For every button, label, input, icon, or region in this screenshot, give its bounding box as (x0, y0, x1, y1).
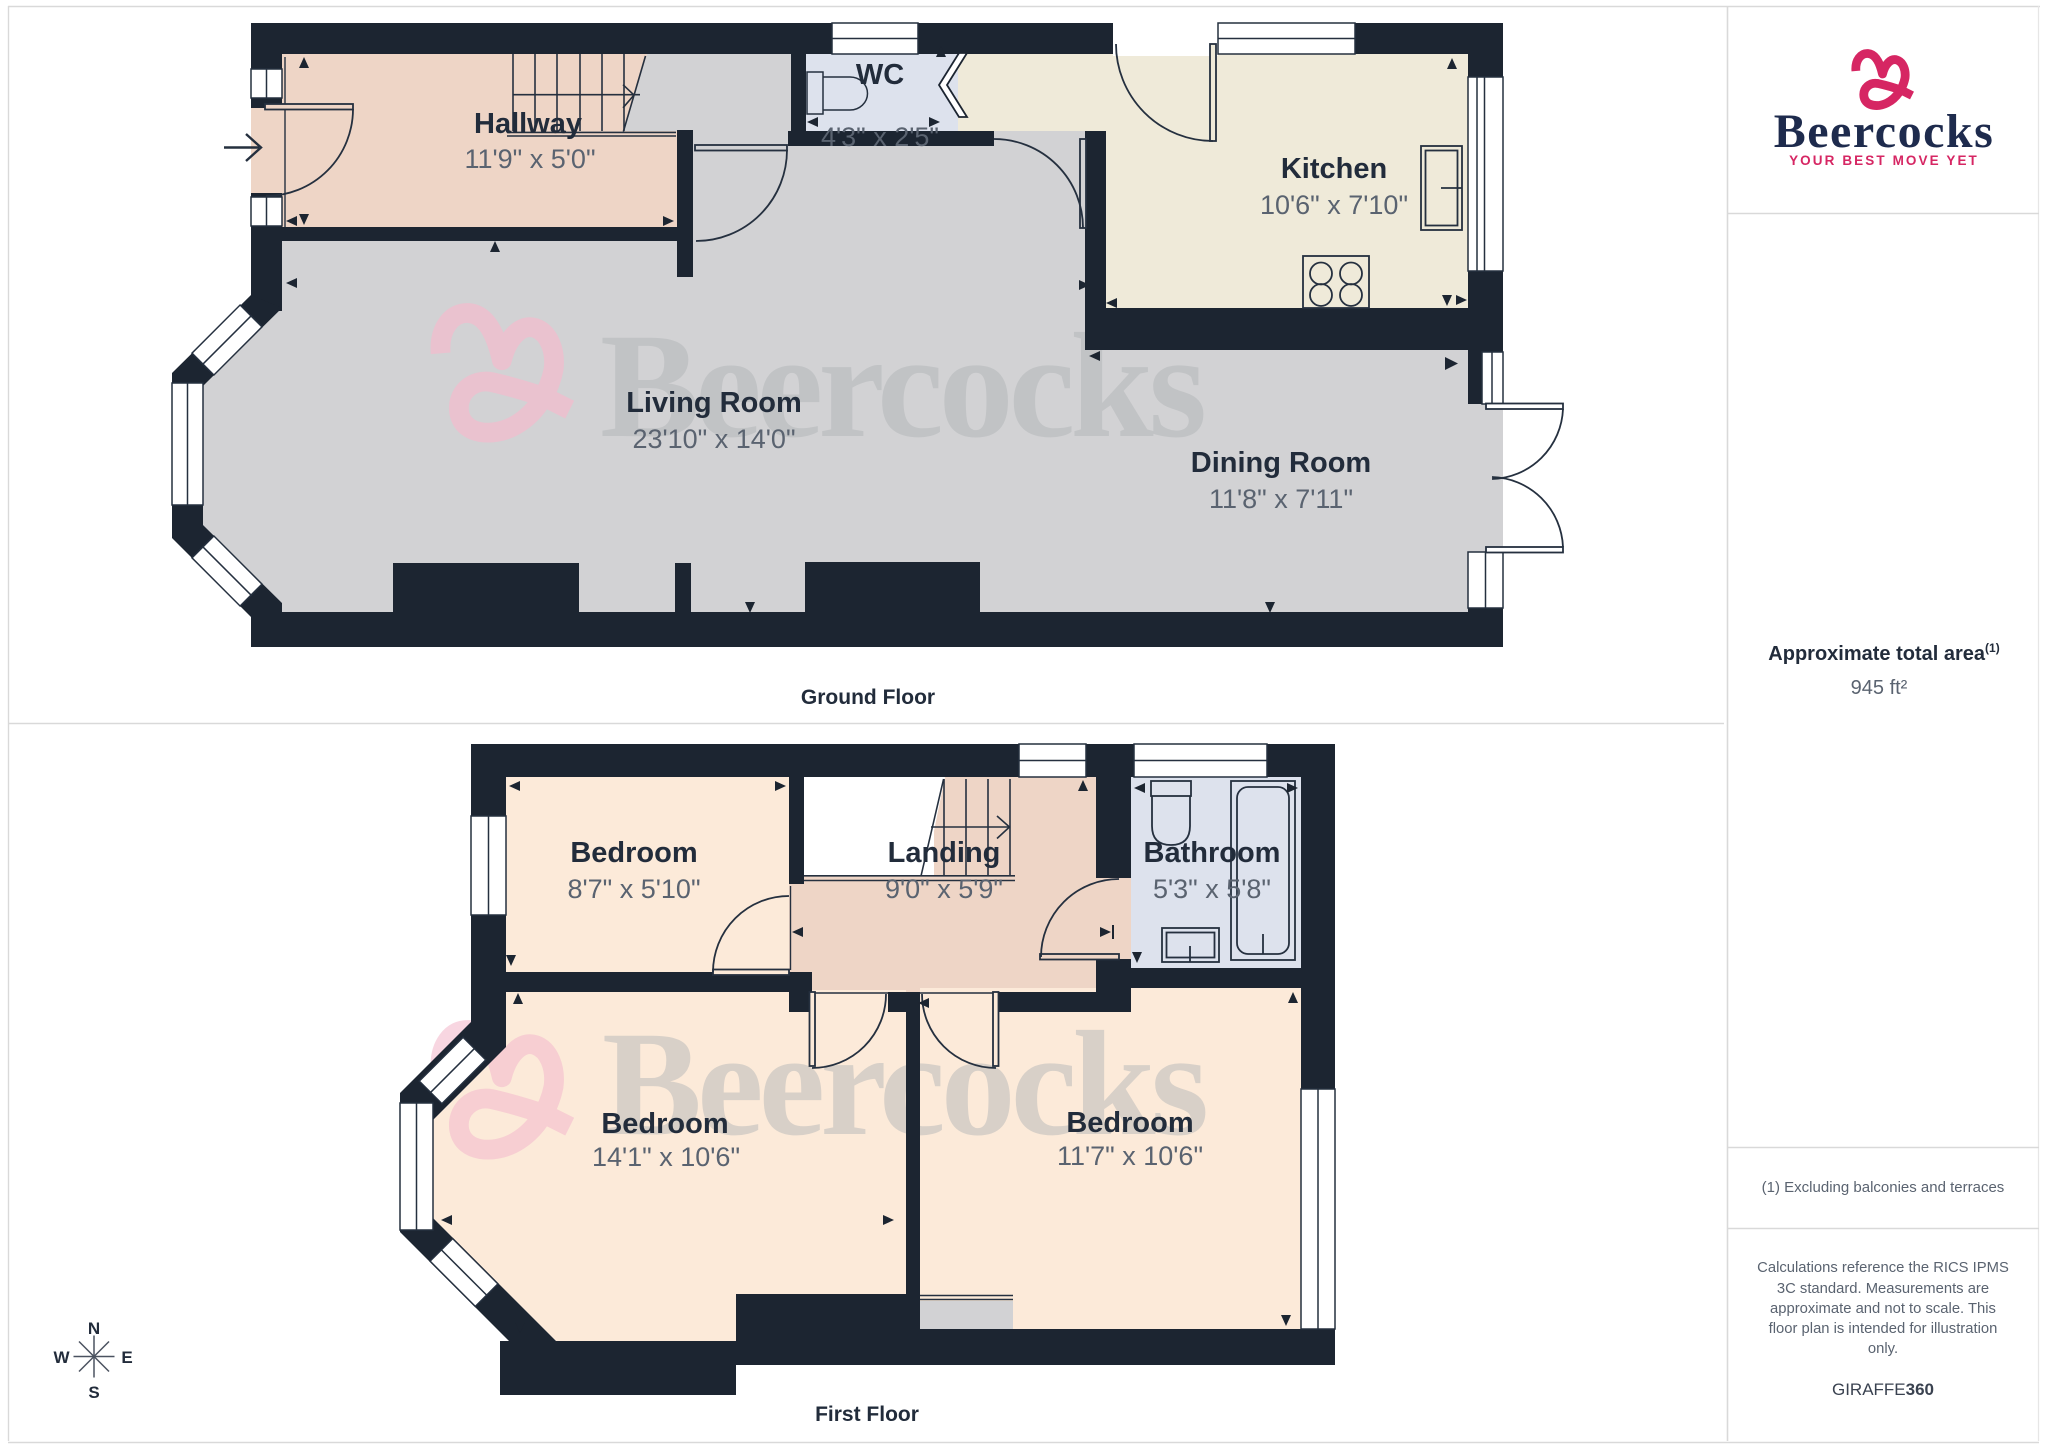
svg-text:N: N (88, 1319, 100, 1338)
svg-text:5'3" x 5'8": 5'3" x 5'8" (1153, 874, 1271, 904)
svg-text:Ground Floor: Ground Floor (801, 686, 935, 709)
svg-text:only.: only. (1868, 1341, 1898, 1357)
svg-text:Hallway: Hallway (474, 108, 582, 140)
svg-text:Calculations reference the RIC: Calculations reference the RICS IPMS (1757, 1260, 2009, 1276)
svg-text:14'1" x 10'6": 14'1" x 10'6" (592, 1142, 740, 1172)
svg-text:S: S (88, 1383, 99, 1402)
svg-text:945 ft²: 945 ft² (1851, 677, 1908, 699)
svg-text:Bedroom: Bedroom (570, 837, 697, 869)
svg-text:floor plan is intended for ill: floor plan is intended for illustration (1769, 1321, 1998, 1337)
svg-text:Approximate total area(1): Approximate total area(1) (1768, 641, 1999, 665)
svg-text:3C standard. Measurements are: 3C standard. Measurements are (1777, 1281, 1989, 1297)
svg-text:11'8" x 7'11": 11'8" x 7'11" (1209, 484, 1353, 514)
svg-text:8'7" x 5'10": 8'7" x 5'10" (567, 874, 700, 904)
svg-text:First Floor: First Floor (815, 1403, 919, 1426)
svg-text:Dining Room: Dining Room (1191, 447, 1371, 479)
svg-text:GIRAFFE360: GIRAFFE360 (1832, 1380, 1934, 1399)
svg-text:Bedroom: Bedroom (601, 1108, 728, 1140)
svg-text:Beercocks: Beercocks (1774, 105, 1995, 158)
svg-text:11'7" x 10'6": 11'7" x 10'6" (1057, 1141, 1203, 1171)
svg-text:Kitchen: Kitchen (1281, 153, 1387, 185)
svg-text:Landing: Landing (888, 837, 1001, 869)
svg-text:4'3" x 2'5": 4'3" x 2'5" (821, 122, 939, 152)
svg-text:W: W (53, 1348, 70, 1367)
svg-text:23'10" x 14'0": 23'10" x 14'0" (632, 424, 795, 454)
svg-text:approximate and not to scale.: approximate and not to scale. This (1770, 1301, 1996, 1317)
svg-text:11'9" x 5'0": 11'9" x 5'0" (464, 144, 595, 174)
svg-text:WC: WC (856, 59, 904, 91)
svg-text:9'0" x 5'9": 9'0" x 5'9" (885, 874, 1003, 904)
svg-text:10'6" x 7'10": 10'6" x 7'10" (1260, 190, 1408, 220)
svg-text:Bathroom: Bathroom (1144, 837, 1281, 869)
svg-text:E: E (121, 1348, 132, 1367)
svg-text:YOUR BEST MOVE YET: YOUR BEST MOVE YET (1789, 153, 1979, 168)
svg-text:(1) Excluding balconies and te: (1) Excluding balconies and terraces (1762, 1179, 2005, 1196)
svg-text:Living Room: Living Room (626, 387, 802, 419)
svg-text:Bedroom: Bedroom (1066, 1107, 1193, 1139)
